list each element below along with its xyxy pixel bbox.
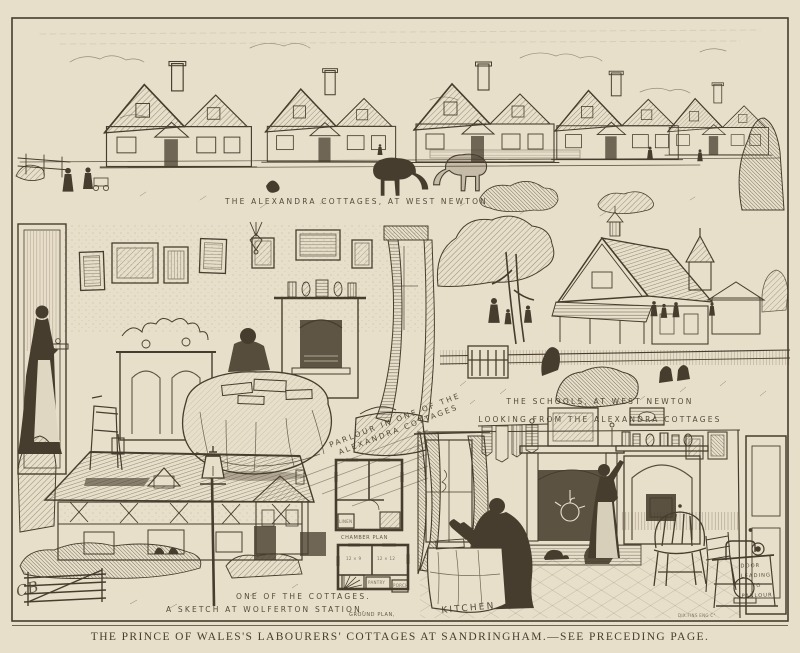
engraving-page: THE ALEXANDRA COTTAGES, AT WEST NEWTON P…	[0, 0, 800, 653]
label-linen: LINEN	[339, 519, 352, 524]
vignette-schools	[437, 206, 790, 407]
pram	[94, 178, 108, 186]
dado-panelling	[622, 512, 738, 530]
clouds	[70, 43, 726, 118]
hedge-front	[20, 543, 201, 579]
label-dim-right: 12 × 12	[377, 556, 395, 561]
gate	[468, 346, 508, 378]
tree-foliage	[437, 216, 553, 286]
engraver-signature: DIX.FINS ENG C°	[678, 613, 716, 618]
hearth-rug	[517, 545, 641, 565]
door-note-line2: LEADING	[741, 570, 772, 581]
vignette-kitchen	[414, 408, 786, 618]
horse-dark	[373, 158, 428, 196]
seated-figure	[266, 180, 280, 192]
apron	[34, 360, 60, 442]
stairs	[380, 512, 400, 528]
label-porch: PORCH	[393, 583, 408, 588]
note-door-to-parlour: DOOR LEADING TO PARLOUR	[740, 560, 773, 601]
window-plant	[442, 470, 447, 492]
kitchen-range	[624, 456, 700, 544]
engraving-artwork	[0, 0, 800, 653]
label-chamber-plan: CHAMBER PLAN	[341, 535, 388, 541]
seated-man	[228, 328, 270, 372]
label-ground-plan: GROUND PLAN,	[349, 612, 395, 618]
caption-schools: THE SCHOOLS, AT WEST NEWTON LOOKING FROM…	[470, 391, 730, 427]
caption-schools-line2: LOOKING FROM THE ALEXANDRA COTTAGES	[478, 415, 721, 424]
vignette-alexandra-cottages	[16, 30, 784, 216]
caption-wolferton: A SKETCH AT WOLFERTON STATION.	[166, 605, 367, 614]
label-pantry: PANTRY	[368, 580, 385, 585]
door-note-line4: PARLOUR	[741, 590, 772, 601]
stair-fan	[342, 575, 364, 589]
school-building	[552, 206, 764, 344]
veranda-roof	[552, 302, 652, 322]
print-through	[40, 30, 760, 44]
caption-schools-line1: THE SCHOOLS, AT WEST NEWTON	[506, 397, 693, 406]
page-caption: THE PRINCE OF WALES'S LABOURERS' COTTAGE…	[0, 631, 800, 643]
lamp-post	[200, 446, 226, 606]
caption-one-of-cottages: ONE OF THE COTTAGES.	[236, 592, 371, 601]
caption-alexandra-cottages: THE ALEXANDRA COTTAGES, AT WEST NEWTON	[225, 197, 488, 206]
outbuilding	[300, 532, 326, 556]
pelmet	[384, 226, 428, 240]
left-tree	[18, 436, 56, 532]
vignette-wolferton	[18, 436, 326, 608]
seated-children	[659, 365, 690, 383]
label-dim-left: 12 × 9	[346, 556, 361, 561]
vignette-plans	[336, 460, 408, 592]
